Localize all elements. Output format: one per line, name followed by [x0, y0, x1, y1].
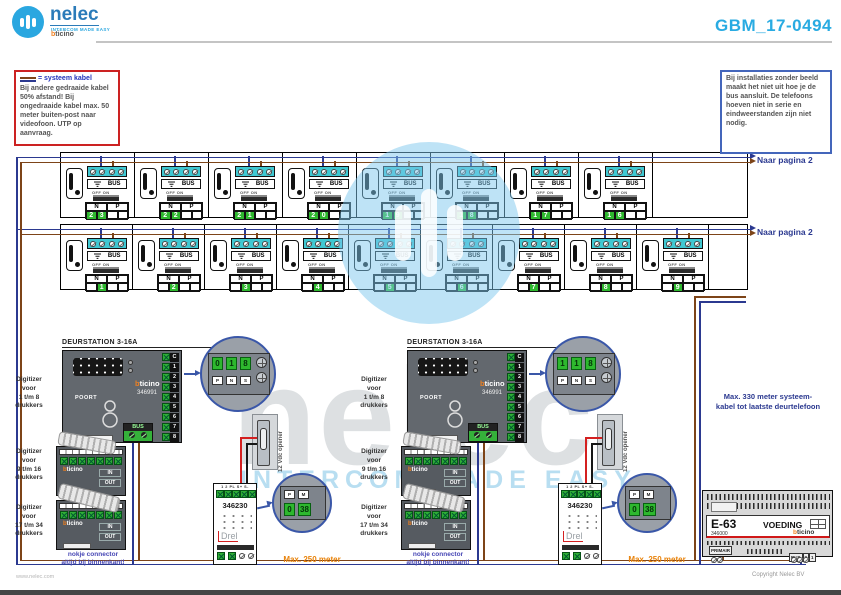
bus-terminal-block — [375, 238, 415, 249]
print-label: Drel — [563, 531, 583, 542]
terminal: 3 — [162, 382, 181, 392]
handset-icon — [138, 240, 155, 271]
cable-note-box: = systeem kabel Bij andere gedraaide kab… — [14, 70, 120, 146]
psu-name: E-63 — [711, 517, 736, 531]
bus-terminal: BUS — [123, 423, 153, 442]
bus-label-row: BUS — [231, 251, 271, 261]
page-bottom-bar — [0, 590, 841, 595]
in-label: IN — [99, 523, 121, 531]
bus-screws — [562, 552, 600, 560]
handset-icon — [642, 240, 659, 271]
speaker-grille-icon — [73, 358, 123, 376]
address-cell — [467, 283, 478, 292]
digitizer-label-3: Digitizer voor 17 t/m 34 drukkers — [351, 504, 397, 539]
setting-digit: 8 — [585, 357, 596, 370]
opener-wire-black — [591, 443, 593, 483]
address-digit: 8 — [601, 283, 612, 292]
address-cell — [662, 283, 673, 292]
address-digit: 1 — [604, 211, 615, 220]
cable-swatch-icon — [20, 77, 36, 82]
max-meter-label: Max. 250 meter — [607, 555, 707, 564]
bus-terminal-block — [663, 238, 703, 249]
address-cell — [179, 283, 190, 292]
logo-bar — [20, 18, 24, 27]
in-label: IN — [444, 523, 466, 531]
connector-icon — [241, 195, 267, 201]
bus-label-row: BUS — [457, 179, 497, 189]
bus-terminal-block — [303, 238, 343, 249]
handset-icon — [210, 240, 227, 271]
right-trunk-blue — [699, 301, 746, 303]
bus-screws — [791, 550, 809, 568]
terminal: 7 — [507, 422, 526, 432]
ribbon-connector — [408, 543, 436, 549]
screw-icon — [507, 423, 515, 431]
screw-icon — [162, 353, 170, 361]
address-digit: 9 — [393, 211, 404, 220]
handset-icon — [282, 240, 299, 271]
address-cell — [181, 211, 192, 220]
address-cell — [107, 211, 118, 220]
document-number: GBM_17-0494 — [540, 16, 832, 36]
address-cell — [192, 211, 203, 220]
bus-terminal-block — [87, 238, 127, 249]
terminal: 4 — [507, 392, 526, 402]
address-cell — [611, 283, 622, 292]
address-table: NP21 — [233, 202, 277, 219]
setting-digit: 0 — [212, 357, 223, 370]
address-cell — [262, 283, 273, 292]
ground-icon — [93, 181, 102, 188]
address-cell — [694, 283, 705, 292]
connector-icon — [167, 195, 193, 201]
station-title: DEURSTATION 3-16A — [62, 339, 214, 348]
address-digit: 4 — [313, 283, 324, 292]
interface-settings-circle: PM 038 — [272, 473, 332, 533]
right-trunk-brown — [694, 296, 696, 561]
address-table: NP6 — [445, 274, 489, 291]
address-table: NP16 — [603, 202, 647, 219]
opener-latch — [260, 428, 267, 450]
bus-label-row: BUS — [159, 251, 199, 261]
ground-icon — [167, 181, 176, 188]
logo-bar — [32, 18, 36, 27]
ground-icon — [611, 181, 620, 188]
in-label: IN — [444, 469, 466, 477]
terminal: 6 — [507, 412, 526, 422]
address-table: NP2 — [157, 274, 201, 291]
setting-digits: 038 — [629, 503, 656, 516]
setting-digit: 0 — [284, 503, 295, 516]
bus-terminal-block — [159, 238, 199, 249]
address-table: NP23 — [85, 202, 129, 219]
handset-icon — [362, 168, 379, 199]
opener-wire-black — [246, 443, 248, 483]
bus-label-row: BUS — [531, 179, 571, 189]
screw-icon — [507, 373, 515, 381]
interface-settings-circle: PM 038 — [617, 473, 677, 533]
setting-label: P — [284, 490, 295, 499]
out-label: OUT — [99, 533, 121, 541]
terminal: 5 — [162, 402, 181, 412]
partner-logo: bticino — [51, 31, 74, 38]
connector-icon — [309, 267, 335, 273]
terminal: 4 — [162, 392, 181, 402]
out-label: OUT — [444, 533, 466, 541]
vent-dots — [220, 513, 252, 530]
terminal-screws — [216, 490, 255, 498]
screw-icon — [507, 353, 515, 361]
address-digit: 1 — [245, 211, 256, 220]
trunk-wire-brown — [20, 162, 22, 561]
address-cell — [334, 283, 345, 292]
ground-icon — [525, 253, 534, 260]
bottom-strip — [562, 545, 599, 550]
arrow-icon — [750, 158, 756, 164]
address-cell — [551, 211, 562, 220]
station-bus-wire — [138, 443, 140, 560]
address-cell — [406, 283, 417, 292]
speaker-grille-icon — [418, 358, 468, 376]
bus-terminal-block — [231, 238, 271, 249]
bus-terminal-block — [235, 166, 275, 177]
opener-latch — [605, 428, 612, 450]
address-cell — [488, 211, 499, 220]
led-icon — [128, 360, 133, 365]
ground-icon — [381, 253, 390, 260]
copyright: Copyright Nelec BV — [752, 572, 804, 578]
handset-icon — [584, 168, 601, 199]
screw-icon — [507, 383, 515, 391]
schematic-page: nelec INTERCOM MADE EASY bticino GBM_17-… — [0, 0, 841, 595]
primair-screws — [711, 550, 723, 568]
connector-icon — [389, 195, 415, 201]
address-table: NP9 — [661, 274, 705, 291]
terminal-strip: C12345678 — [162, 352, 181, 442]
address-cell — [562, 211, 573, 220]
interface-346230: 1 2 PL S+ S- 346230 Drel — [558, 483, 602, 565]
ground-icon — [309, 253, 318, 260]
screw-icon — [507, 363, 515, 371]
setting-labels: PNS — [557, 376, 596, 385]
address-cell — [329, 211, 340, 220]
setting-digit: 38 — [643, 503, 656, 516]
connector-icon — [597, 267, 623, 273]
opener-label: 12 Vdc opener — [623, 416, 629, 472]
bus-label-row: BUS — [303, 251, 343, 261]
address-cell — [403, 211, 414, 220]
address-digit: 2 — [160, 211, 171, 220]
in-label: IN — [99, 469, 121, 477]
screw-icon — [162, 413, 170, 421]
bus-terminal-block — [161, 166, 201, 177]
address-table: NP17 — [529, 202, 573, 219]
speaker-icon — [446, 399, 464, 429]
address-digit: 7 — [529, 283, 540, 292]
terminal: 5 — [507, 402, 526, 412]
address-cell — [118, 211, 129, 220]
ground-icon — [453, 253, 462, 260]
led-icon — [473, 368, 478, 373]
bus-wire-brown — [20, 234, 750, 236]
address-digit: 1 — [456, 211, 467, 220]
brand-label: bticino — [408, 467, 428, 473]
nelec-logo-icon — [12, 6, 44, 38]
right-trunk-blue — [699, 301, 701, 564]
brand-label: bticino — [480, 379, 505, 388]
bus-screws — [217, 552, 255, 560]
address-cell — [683, 283, 694, 292]
bus-label-row: BUS — [235, 179, 275, 189]
screw-icon — [162, 393, 170, 401]
model-number: 346230 — [214, 501, 256, 510]
naar-pagina-label: Naar pagina 2 — [757, 227, 813, 237]
address-digit: 3 — [97, 211, 108, 220]
screw-icon — [162, 433, 170, 441]
setting-digit: 0 — [629, 503, 640, 516]
setting-label: P — [629, 490, 640, 499]
address-digit: 9 — [673, 283, 684, 292]
vent-dots — [565, 513, 597, 530]
address-cell — [518, 283, 529, 292]
digitizer-label-2: Digitizer voor 9 t/m 16 drukkers — [6, 448, 52, 483]
terminal-strip: C12345678 — [507, 352, 526, 442]
rating-table — [810, 519, 826, 529]
bus-terminal-block — [87, 166, 127, 177]
speaker-icon — [101, 399, 119, 429]
address-cell — [86, 283, 97, 292]
connector-icon — [463, 195, 489, 201]
terminal: C — [162, 352, 181, 362]
station-settings-circle: 018 PNS — [200, 336, 276, 412]
address-digit: 6 — [615, 211, 626, 220]
bus-label-row: BUS — [161, 179, 201, 189]
connector-icon — [381, 267, 407, 273]
screw-icon — [162, 363, 170, 371]
address-cell — [323, 283, 334, 292]
terminal-screws — [404, 456, 468, 465]
setting-digit: 38 — [298, 503, 311, 516]
address-cell — [590, 283, 601, 292]
panel-label: POORT — [420, 395, 442, 401]
address-cell — [622, 283, 633, 292]
address-digit: 0 — [319, 211, 330, 220]
handset-icon — [436, 168, 453, 199]
door-station-1: bticino 346991 POORT BUS C12345678 — [62, 350, 182, 443]
brand-label: bticino — [793, 529, 814, 536]
opener-wire-red — [240, 437, 258, 439]
address-cell — [446, 283, 457, 292]
connector-icon — [537, 195, 563, 201]
connector-icon — [525, 267, 551, 273]
vent-strip — [707, 494, 830, 500]
address-cell — [539, 283, 550, 292]
right-trunk-brown — [694, 296, 746, 298]
website: www.nelec.com — [16, 574, 54, 580]
screw-icon — [256, 357, 267, 368]
power-supply-e63: E-63 346000 VOEDING bticino PRIMAIR BUS2… — [702, 490, 833, 557]
address-cell — [395, 283, 406, 292]
station-bus-wire — [483, 443, 485, 560]
terminal: C — [507, 352, 526, 362]
address-table: NP3 — [229, 274, 273, 291]
bus-label-row: BUS — [87, 251, 127, 261]
address-table: NP22 — [159, 202, 203, 219]
handset-icon — [66, 168, 83, 199]
station-title: DEURSTATION 3-16A — [407, 339, 559, 348]
bus-label-row: BUS — [663, 251, 703, 261]
setting-label: M — [298, 490, 309, 499]
bus-terminal-block — [605, 166, 645, 177]
connector-note: nokje connector altijd bij binnenkant! — [383, 551, 493, 568]
bus-wire-blue — [16, 229, 750, 231]
setting-label: P — [212, 376, 223, 385]
setting-digit: 8 — [240, 357, 251, 370]
station-bus-wire — [132, 443, 134, 564]
brand-label: bticino — [63, 467, 83, 473]
screw-icon — [601, 357, 612, 368]
address-cell — [251, 283, 262, 292]
led-icon — [473, 360, 478, 365]
address-cell — [478, 283, 489, 292]
brand-label: bticino — [63, 521, 83, 527]
vent-strip — [707, 541, 830, 545]
setting-labels: PM — [629, 490, 654, 499]
screw-icon — [507, 393, 515, 401]
screw-icon — [162, 373, 170, 381]
installation-note-box: Bij installaties zonder beeld maakt het … — [720, 70, 832, 154]
address-cell — [636, 211, 647, 220]
bus-terminal: BUS — [468, 423, 498, 442]
handset-icon — [354, 240, 371, 271]
address-digit: 1 — [530, 211, 541, 220]
bus-terminal-block — [519, 238, 559, 249]
connector-icon — [93, 267, 119, 273]
connector-icon — [237, 267, 263, 273]
address-digit: 1 — [382, 211, 393, 220]
address-cell — [230, 283, 241, 292]
address-table: NP4 — [301, 274, 345, 291]
screw-icon — [162, 383, 170, 391]
print-label: Drel — [218, 531, 238, 542]
terminal: 1 — [162, 362, 181, 372]
terminal-chip: 1 — [809, 553, 816, 562]
address-table: NP5 — [373, 274, 417, 291]
setting-digits: 018 — [212, 357, 251, 370]
out-label: OUT — [444, 479, 466, 487]
opener-wire-red — [585, 437, 603, 439]
setting-label: N — [226, 376, 237, 385]
out-label: OUT — [99, 479, 121, 487]
brand-label: bticino — [408, 521, 428, 527]
ground-icon — [93, 253, 102, 260]
address-table: NP19 — [381, 202, 425, 219]
opener-wire-red — [240, 437, 242, 483]
terminal: 2 — [162, 372, 181, 382]
bus-terminal-block — [457, 166, 497, 177]
setting-label: M — [643, 490, 654, 499]
address-cell — [107, 283, 118, 292]
ground-icon — [237, 253, 246, 260]
bus-label-row: BUS — [591, 251, 631, 261]
terminal: 8 — [162, 432, 181, 442]
digitizer-label-3: Digitizer voor 17 t/m 34 drukkers — [6, 504, 52, 539]
bus-wire-brown — [20, 162, 750, 164]
address-cell — [266, 211, 277, 220]
max-meter-label: Max. 250 meter — [262, 555, 362, 564]
setting-digits: 038 — [284, 503, 311, 516]
connector-icon — [453, 267, 479, 273]
address-digit: 3 — [241, 283, 252, 292]
setting-label: N — [571, 376, 582, 385]
ground-icon — [669, 253, 678, 260]
ground-icon — [315, 181, 324, 188]
ground-icon — [389, 181, 398, 188]
bus-terminal-block — [531, 166, 571, 177]
label-band: E-63 346000 VOEDING bticino — [706, 515, 830, 538]
terminal: 2 — [507, 372, 526, 382]
station-settings-circle: 118 PNS — [545, 336, 621, 412]
bus-terminal-block — [383, 166, 423, 177]
connector-icon — [611, 195, 637, 201]
address-table: NP8 — [589, 274, 633, 291]
setting-digits: 118 — [557, 357, 596, 370]
digitizer-label-1: Digitizer voor 1 t/m 8 drukkers — [6, 376, 52, 411]
terminal-labels: 1 2 PL S+ S- — [214, 485, 256, 489]
setting-digit: 1 — [571, 357, 582, 370]
address-digit: 2 — [308, 211, 319, 220]
bus-terminal-block — [309, 166, 349, 177]
brand-name: nelec — [50, 5, 99, 26]
address-digit: 1 — [97, 283, 108, 292]
terminal-screws — [561, 490, 600, 498]
address-table: NP1 — [85, 274, 129, 291]
address-digit: 5 — [385, 283, 396, 292]
setting-label: P — [557, 376, 568, 385]
handset-icon — [570, 240, 587, 271]
address-table: NP7 — [517, 274, 561, 291]
screw-icon — [162, 403, 170, 411]
interface-346230: 1 2 PL S+ S- 346230 Drel — [213, 483, 257, 565]
bus-label-row: BUS — [519, 251, 559, 261]
address-digit: 2 — [171, 211, 182, 220]
address-table: NP20 — [307, 202, 351, 219]
model-number: 346991 — [482, 390, 502, 396]
vent-strip — [747, 549, 785, 554]
handset-icon — [498, 240, 515, 271]
digitizer-label-1: Digitizer voor 1 t/m 8 drukkers — [351, 376, 397, 411]
terminal: 7 — [162, 422, 181, 432]
arrow-icon — [750, 230, 756, 236]
handset-icon — [426, 240, 443, 271]
led-icon — [128, 368, 133, 373]
connector-icon — [165, 267, 191, 273]
connector-icon — [669, 267, 695, 273]
connector-note: nokje connector altijd bij binnenkant! — [38, 551, 148, 568]
bus-label-row: BUS — [375, 251, 415, 261]
logo-bar — [26, 15, 30, 29]
screw-icon — [601, 372, 612, 383]
address-digit: 6 — [457, 283, 468, 292]
setting-digit: 1 — [226, 357, 237, 370]
bus-label-row: BUS — [309, 179, 349, 189]
setting-label: S — [240, 376, 251, 385]
handset-icon — [510, 168, 527, 199]
address-cell — [118, 283, 129, 292]
handset-icon — [140, 168, 157, 199]
header-rule — [96, 41, 832, 43]
screw-icon — [256, 372, 267, 383]
